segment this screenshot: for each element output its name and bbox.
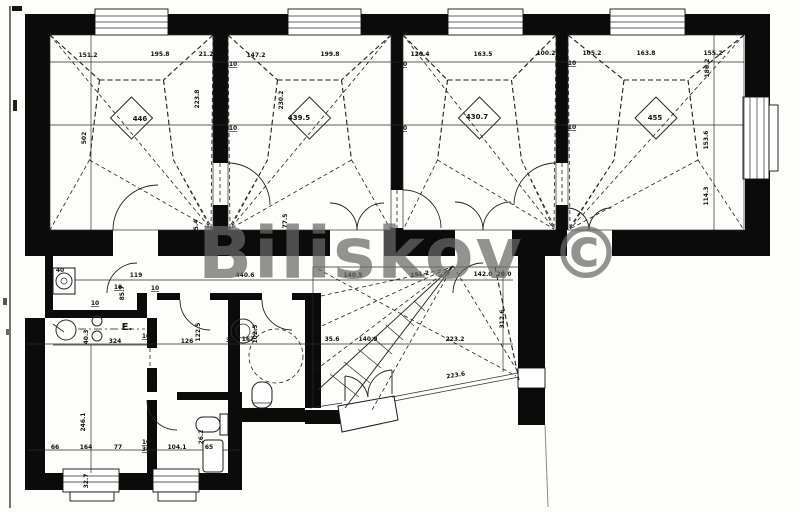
dim-label: 10 bbox=[399, 61, 407, 68]
dim-label: 77 bbox=[114, 444, 122, 451]
room-2 bbox=[228, 35, 391, 230]
dim-label: 126 bbox=[181, 338, 194, 345]
dim-label: 20.0 bbox=[497, 271, 512, 278]
interior-lines bbox=[53, 345, 150, 473]
window-bottom-1 bbox=[63, 469, 119, 501]
dim-label: 230.2 bbox=[278, 91, 285, 110]
dim-label: 163.8 bbox=[637, 50, 656, 57]
dim-label: 140.9 bbox=[359, 336, 378, 343]
dim-label: 21.2 bbox=[199, 51, 214, 58]
entrance-double-door bbox=[345, 376, 368, 397]
dim-label: 186.2 bbox=[704, 59, 711, 78]
dim-label: 195.8 bbox=[151, 51, 170, 58]
dim-label: 34 bbox=[226, 337, 234, 344]
dim-label: 164 bbox=[80, 444, 93, 451]
dim-label: 155.2 bbox=[704, 50, 723, 57]
dim-label: 105.2 bbox=[583, 50, 602, 57]
dim-label: 502 bbox=[81, 132, 88, 145]
entrance-landing bbox=[338, 396, 398, 432]
double-door-room3 bbox=[455, 202, 483, 230]
dim-label: 75.4 bbox=[193, 220, 200, 235]
area-label: 439.5 bbox=[288, 114, 310, 122]
dim-label: 120.4 bbox=[411, 51, 430, 58]
dim-label: 312.6 bbox=[499, 310, 506, 329]
dim-label: 119 bbox=[130, 272, 143, 279]
dim-label: 151.2 bbox=[79, 52, 98, 59]
dim-label: E. bbox=[122, 322, 133, 333]
window-top-3 bbox=[448, 9, 523, 35]
dim-label: 10 bbox=[151, 285, 159, 292]
dim-label: 223.2 bbox=[446, 336, 465, 343]
toilet bbox=[252, 382, 272, 408]
dim-label: 40 bbox=[56, 267, 64, 274]
dim-label: 223.6 bbox=[446, 371, 466, 381]
dim-label: 77.5 bbox=[282, 214, 289, 229]
dim-label: 140.5 bbox=[344, 272, 363, 279]
scan-artifacts bbox=[3, 6, 548, 508]
dim-label: 10 bbox=[399, 125, 407, 132]
dim-label: 10 bbox=[568, 124, 576, 131]
door-arc-room3-room4 bbox=[514, 163, 556, 205]
dim-label: 100.2 bbox=[537, 50, 556, 57]
window-top-1 bbox=[95, 9, 168, 35]
floorplan-drawing: 151.2195.821.2147.2199.8120.4163.5100.21… bbox=[0, 0, 799, 514]
dim-label: 167 bbox=[242, 336, 255, 343]
dim-label: 10 bbox=[229, 125, 237, 132]
door-arc-room2-room3 bbox=[403, 190, 441, 228]
dim-label: 153.6 bbox=[703, 131, 710, 150]
dim-label: 36 bbox=[142, 446, 150, 453]
dim-label: 440.6 bbox=[236, 272, 255, 279]
stairwell bbox=[310, 266, 519, 410]
dim-label: 102 bbox=[150, 376, 157, 389]
area-label: 455 bbox=[648, 114, 663, 122]
dim-label: 223.8 bbox=[194, 90, 201, 109]
dim-label: 40.3 bbox=[83, 330, 90, 345]
dim-label: 163.5 bbox=[474, 51, 493, 58]
dim-label: 65 bbox=[205, 444, 213, 451]
dim-label: 10 bbox=[142, 439, 150, 446]
dim-label: 10 bbox=[229, 61, 237, 68]
door-arc-room1 bbox=[113, 185, 158, 230]
dim-label: 10 bbox=[142, 333, 150, 340]
dim-label: 122.5 bbox=[195, 323, 202, 342]
door-arc-bathroom bbox=[262, 300, 292, 330]
dim-label: 147.2 bbox=[247, 52, 266, 59]
room-3 bbox=[403, 35, 556, 230]
room-4 bbox=[568, 35, 744, 230]
door-arc-hall-stairs bbox=[453, 263, 483, 293]
area-label: 446 bbox=[133, 115, 148, 123]
dim-label: 324 bbox=[109, 338, 122, 345]
dim-label: 85.7 bbox=[119, 286, 126, 301]
area-label: 430.7 bbox=[466, 113, 488, 121]
dim-label: 246.1 bbox=[80, 413, 87, 432]
floorplan-scan: 151.2195.821.2147.2199.8120.4163.5100.21… bbox=[0, 0, 799, 514]
dim-label: 66 bbox=[51, 444, 59, 451]
dim-label: 10 bbox=[568, 60, 576, 67]
dim-label: 199.8 bbox=[321, 51, 340, 58]
dim-label: 114.3 bbox=[703, 187, 710, 206]
dim-label: 104.1 bbox=[168, 444, 187, 451]
door-arc-room1-room2 bbox=[228, 163, 270, 205]
dim-label: 32.7 bbox=[83, 474, 90, 489]
window-top-2 bbox=[288, 9, 361, 35]
window-top-4 bbox=[610, 9, 685, 35]
dim-label: 142.0 bbox=[474, 271, 493, 278]
window-right bbox=[743, 97, 778, 179]
dim-label: 10 bbox=[91, 300, 99, 307]
window-bottom-2 bbox=[153, 469, 199, 501]
room-1 bbox=[50, 35, 213, 230]
double-door-room2 bbox=[330, 203, 357, 230]
dim-label: 26.2 bbox=[198, 430, 205, 445]
dim-label: 35.6 bbox=[325, 336, 340, 343]
